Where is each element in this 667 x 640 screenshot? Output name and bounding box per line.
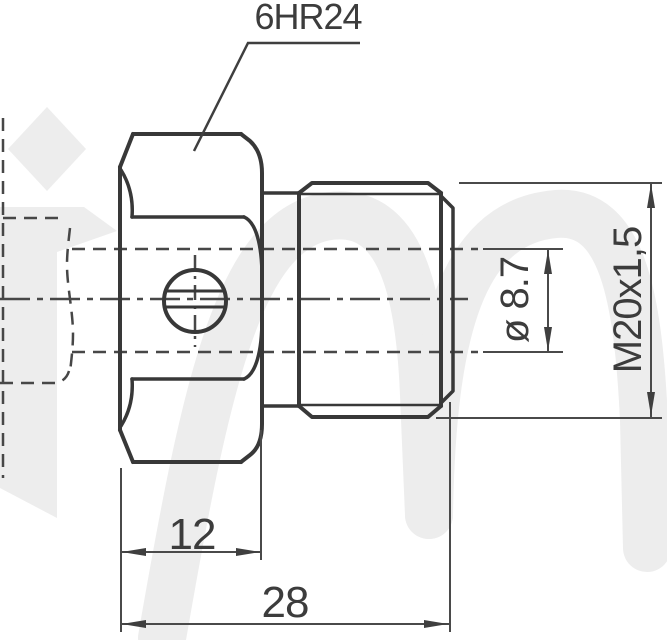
hex-bottom-left-chamfer [120,430,133,462]
arrow-28-left [122,620,146,628]
arrow-bore-bottom [544,327,552,351]
arrow-bore-top [544,250,552,274]
watermark-m-arch-1 [162,215,429,638]
watermark-i-stem [0,207,117,518]
hex-arc-bottom-left [121,379,132,426]
dim-text-overall-length: 28 [262,578,309,627]
arrow-thread-top [647,184,655,208]
dim-text-hex-width: 12 [169,510,216,559]
watermark-im-logo [0,107,647,638]
arrow-28-right [424,620,448,628]
callout-label: 6HR24 [254,0,361,37]
hex-arc-top-left [121,170,132,217]
arrow-12-left [122,548,146,556]
thread-crest-top [299,183,441,193]
technical-drawing-canvas: 6HR24 12 28 ø 8.7 M20x1,5 [0,0,667,640]
arrow-12-right [236,548,260,556]
dim-text-bore-diameter: ø 8.7 [493,257,537,343]
hex-top-left-chamfer [120,134,133,167]
dim-text-thread-spec: M20x1,5 [606,227,650,373]
watermark-i-dot-diamond [8,107,86,191]
technical-drawing-page: 6HR24 12 28 ø 8.7 M20x1,5 [0,0,667,640]
